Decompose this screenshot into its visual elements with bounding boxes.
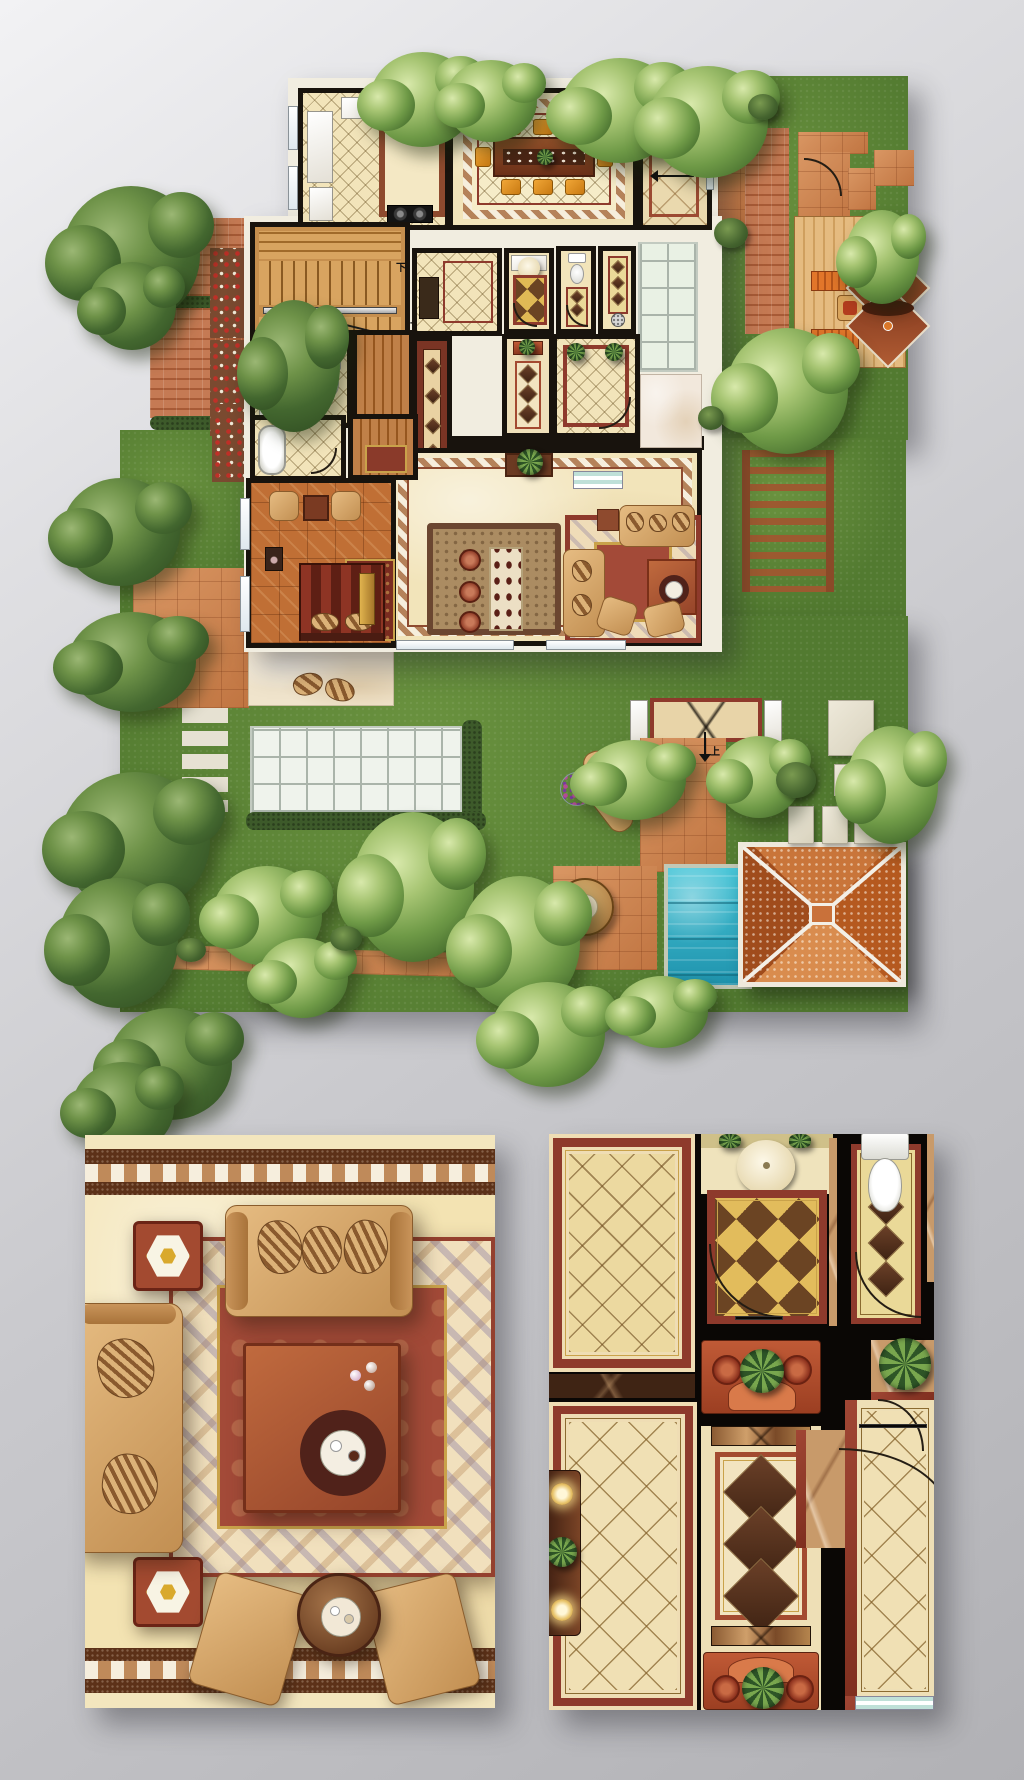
sofa-arm: [226, 1212, 248, 1310]
console-pot: [786, 1675, 814, 1703]
dressing-rug: [365, 445, 407, 473]
terrace-hedge-right: [462, 720, 482, 822]
window-band: [396, 640, 514, 650]
bed-footboard: [301, 633, 383, 641]
tray-cup: [344, 1614, 354, 1624]
pergola-rail: [826, 450, 834, 592]
great-room: [388, 448, 702, 646]
tray-cup: [348, 1450, 360, 1462]
sofa-arm: [390, 1212, 412, 1310]
speaker: [265, 547, 283, 571]
entry-hall: [552, 334, 640, 438]
entry-step: [848, 168, 876, 210]
throw-pillow: [290, 669, 325, 699]
bush: [776, 762, 816, 798]
tile-room-upper: [549, 1134, 695, 1372]
table-lamp: [551, 1483, 573, 1505]
console-pot: [712, 1675, 740, 1703]
sideboard: [549, 1470, 581, 1636]
bedroom-armchair: [269, 491, 299, 521]
sofa-pillow: [98, 1450, 162, 1517]
powder-counter: [701, 1134, 833, 1194]
pine-tree: [58, 878, 178, 1008]
sink-drain: [763, 1162, 770, 1169]
tv-cabinet: [359, 573, 375, 625]
bathtub: [258, 425, 286, 475]
bar-stool: [459, 581, 481, 603]
shower-room: [598, 246, 636, 334]
window: [288, 106, 298, 150]
bar-stool: [459, 549, 481, 571]
sofa-pillow: [92, 1332, 161, 1404]
toilet-tank: [861, 1134, 909, 1160]
bush: [714, 218, 748, 248]
bar-counter: [489, 547, 523, 631]
band-brown: [85, 1149, 495, 1164]
band-cream: [85, 1135, 495, 1149]
window: [288, 166, 298, 210]
wc-toilet-bowl: [570, 264, 584, 284]
marble-band: [549, 1374, 695, 1398]
lounge-terrace: [248, 650, 394, 706]
tray-cup: [330, 1606, 340, 1616]
throw-pillow: [323, 676, 357, 705]
bedroom-armchair: [331, 491, 361, 521]
window: [240, 498, 250, 550]
pergola-rail: [742, 450, 750, 592]
hall-plant: [567, 343, 585, 361]
bush: [698, 406, 724, 430]
marble-block-edge: [796, 1430, 806, 1548]
tree: [845, 210, 919, 304]
console-pot: [712, 1355, 742, 1385]
garden-pavilion-roof: [738, 842, 906, 987]
console-table-lower: [703, 1652, 819, 1710]
glass-roof-terrace: [250, 726, 462, 814]
shower-head-icon: [611, 313, 625, 327]
study: [412, 248, 502, 336]
garden-arrow-line: [704, 732, 706, 756]
tile-room-right: [845, 1400, 934, 1710]
shower-runner: [608, 256, 628, 314]
tree: [258, 938, 348, 1018]
wc-room: [837, 1134, 934, 1330]
door-leaf: [859, 1424, 927, 1428]
corridor-runner: [515, 361, 541, 429]
bush: [748, 94, 778, 120]
dressing-room: [348, 414, 418, 480]
counter-flowers: [719, 1134, 741, 1148]
poster-canvas: 下 上: [0, 0, 1024, 1780]
dining-chair: [565, 179, 585, 195]
deck-cushion: [843, 301, 857, 315]
console-plant: [742, 1667, 784, 1709]
sofa-pillow: [340, 1217, 393, 1278]
kitchen-appliance: [309, 187, 333, 221]
corridor-runner-large: [715, 1452, 807, 1620]
runner-diamond: [611, 276, 625, 290]
marble-border-left: [845, 1400, 857, 1710]
pergola: [742, 450, 834, 592]
entry-arrow-head: [644, 170, 658, 182]
runner-diamond: [425, 418, 442, 435]
decor-sphere: [366, 1362, 377, 1373]
runner-diamond: [518, 384, 538, 404]
sofa-two-seat: [225, 1205, 413, 1317]
sofa-pillow: [254, 1217, 305, 1277]
band-checker: [85, 1164, 495, 1182]
runner-diamond: [611, 292, 625, 306]
detail-right-hallway: [549, 1134, 934, 1710]
study-rug-line: [443, 261, 493, 323]
hall-steps: [573, 471, 623, 489]
pine-tree: [62, 478, 180, 586]
bar-stool: [459, 611, 481, 633]
bush: [330, 926, 362, 951]
stair-flight-upper: [259, 261, 401, 305]
entry-arrow-line: [652, 175, 694, 177]
bedroom-side-table: [303, 495, 329, 521]
console-pot: [782, 1355, 812, 1385]
door-leaf: [735, 1316, 783, 1320]
dining-chair: [533, 179, 553, 195]
console-plant: [740, 1349, 784, 1393]
decor-sphere: [364, 1380, 375, 1391]
pavilion-finial: [809, 903, 835, 925]
stair-landing: [259, 231, 401, 259]
sunroom: [638, 242, 698, 372]
sofa-pillow: [649, 514, 667, 532]
kitchen-counter-left: [307, 111, 333, 183]
diamond-grid-field: [569, 1154, 675, 1352]
sofa-pillow: [672, 512, 690, 532]
counter-flowers: [789, 1134, 811, 1148]
entry-platform: [798, 132, 868, 154]
powder-room: [504, 248, 554, 334]
sofa-pillow: [300, 1225, 343, 1276]
detail-left-living-room: [85, 1135, 495, 1708]
window: [240, 576, 250, 632]
study-cabinet: [419, 277, 439, 319]
walk-in-closet: [352, 330, 414, 422]
console-plant: [519, 339, 535, 355]
tree: [726, 328, 848, 454]
dining-chair: [501, 179, 521, 195]
tree: [616, 976, 708, 1048]
tree: [445, 60, 537, 142]
pine-tree: [248, 300, 340, 432]
dining-chair: [475, 147, 491, 167]
bar-rug: [427, 523, 561, 635]
bath-door-arc: [311, 448, 337, 474]
hex-end-table: [597, 509, 619, 531]
hex-end-table: [133, 1221, 203, 1291]
toilet-bowl: [868, 1158, 902, 1212]
bedroom: [246, 478, 396, 648]
sideboard-plant: [549, 1537, 577, 1567]
planter-plant: [517, 449, 543, 475]
wc: [556, 246, 596, 334]
sofa-pillow: [572, 560, 592, 582]
table-centerpiece: [537, 149, 553, 165]
runner-diamond: [611, 260, 625, 274]
table-lamp: [551, 1599, 573, 1621]
pagoda-finial: [883, 321, 893, 331]
bush: [176, 938, 206, 962]
window-band: [546, 640, 626, 650]
tree: [582, 740, 686, 820]
runner-diamond: [425, 358, 442, 375]
stair-down-label: 下: [396, 264, 406, 274]
wc-toilet-tank: [568, 253, 586, 263]
round-side-table: [297, 1573, 381, 1657]
sofa-chaise: [85, 1303, 183, 1553]
sofa-pillow: [572, 594, 592, 616]
kitchen-stove: [387, 205, 433, 223]
sofa: [619, 505, 695, 547]
corner-plant: [879, 1338, 931, 1390]
tree: [846, 726, 938, 844]
runner-diamond: [425, 388, 442, 405]
threshold-step: [855, 1696, 934, 1710]
inner-corridor: [502, 334, 554, 438]
sofa-pillow: [626, 512, 644, 532]
tray-cup: [330, 1440, 342, 1452]
tree: [490, 982, 605, 1087]
porch-landing: [650, 698, 762, 742]
coffee-table-large: [243, 1343, 401, 1513]
marble-pilaster: [829, 1138, 837, 1326]
stepping-stone: [788, 806, 814, 844]
table-tray: [321, 1597, 361, 1637]
pine-tree: [88, 262, 176, 350]
bed-pillow: [311, 613, 339, 631]
sofa-arm: [85, 1304, 176, 1324]
garden-up-label: 上: [710, 748, 720, 758]
pine-tree: [68, 612, 196, 712]
tray-plate: [665, 581, 683, 599]
hex-end-table: [133, 1557, 203, 1627]
band-brown: [85, 1182, 495, 1195]
diamond-grid-field: [569, 1422, 677, 1690]
runner-diamond: [518, 364, 538, 384]
marble-sliver: [927, 1134, 934, 1282]
entry-step-outer: [874, 150, 914, 186]
decor-sphere: [350, 1370, 361, 1381]
tree: [648, 66, 768, 178]
console-table: [701, 1340, 821, 1414]
hall-plant: [605, 343, 623, 361]
side-terrace: [640, 374, 702, 448]
column-capital: [711, 1626, 811, 1646]
runner-diamond: [518, 404, 538, 424]
